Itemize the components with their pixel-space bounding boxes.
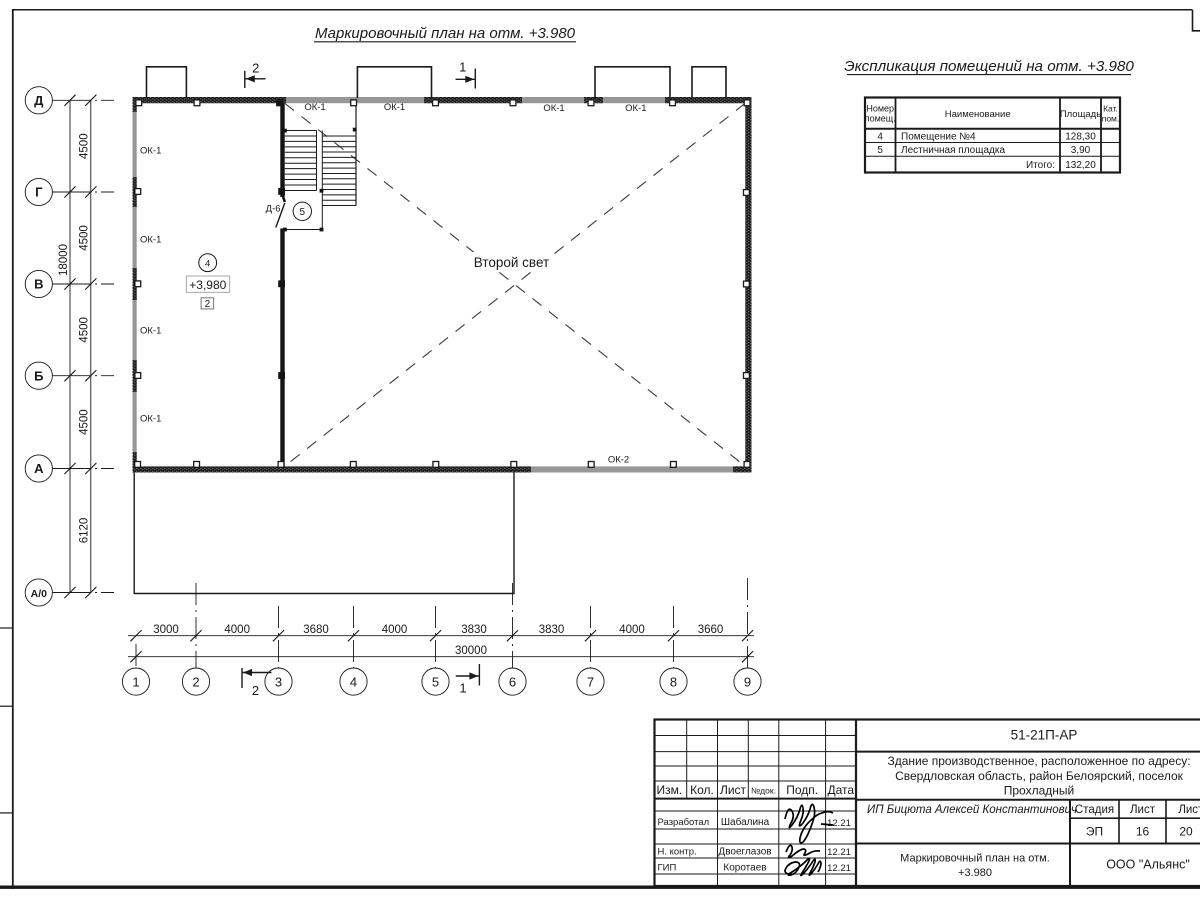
svg-text:4000: 4000: [382, 624, 408, 636]
svg-text:+3,980: +3,980: [189, 278, 226, 292]
svg-text:Д-6: Д-6: [266, 204, 281, 215]
svg-text:3,90: 3,90: [1071, 145, 1091, 156]
svg-text:ЭП: ЭП: [1086, 825, 1103, 839]
svg-text:4: 4: [350, 674, 357, 689]
svg-text:4000: 4000: [619, 624, 645, 636]
svg-text:Площадь: Площадь: [1060, 109, 1101, 120]
svg-text:Н. контр.: Н. контр.: [658, 847, 697, 858]
svg-text:Кол.: Кол.: [690, 783, 714, 797]
svg-text:ОК-1: ОК-1: [140, 235, 161, 246]
svg-text:12.21: 12.21: [827, 863, 851, 874]
svg-text:Маркировочный план на отм. +3.: Маркировочный план на отм. +3.980: [315, 25, 576, 42]
svg-text:3830: 3830: [539, 624, 565, 636]
svg-text:Кат.: Кат.: [1103, 104, 1118, 114]
svg-text:7: 7: [587, 674, 594, 689]
svg-text:8: 8: [670, 674, 677, 689]
svg-text:Маркировочный план на отм.: Маркировочный план на отм.: [900, 853, 1050, 865]
svg-text:51-21П-АР: 51-21П-АР: [1011, 728, 1078, 743]
svg-text:Коротаев: Коротаев: [723, 863, 766, 874]
svg-text:4: 4: [877, 131, 883, 142]
svg-text:Дата: Дата: [828, 783, 855, 797]
svg-text:Изм.: Изм.: [657, 783, 683, 797]
svg-text:18000: 18000: [58, 244, 70, 276]
svg-text:А/0: А/0: [31, 588, 48, 600]
svg-text:Итого:: Итого:: [1026, 160, 1055, 171]
svg-text:Номер: Номер: [866, 104, 894, 114]
svg-text:12.21: 12.21: [827, 818, 851, 829]
svg-text:Подп.: Подп.: [786, 783, 818, 797]
svg-text:4000: 4000: [224, 624, 250, 636]
svg-text:1: 1: [459, 681, 466, 696]
svg-text:+3.980: +3.980: [958, 867, 992, 879]
svg-text:1: 1: [132, 674, 139, 689]
svg-text:Разработал: Разработал: [658, 817, 710, 828]
svg-text:Лист: Лист: [720, 783, 747, 797]
svg-text:Помещение №4: Помещение №4: [901, 131, 976, 142]
svg-text:3: 3: [275, 674, 282, 689]
svg-text:В: В: [34, 277, 43, 292]
svg-text:4500: 4500: [79, 225, 91, 251]
svg-text:Лестничная площадка: Лестничная площадка: [901, 145, 1005, 156]
svg-text:Двоеглазов: Двоеглазов: [718, 847, 771, 858]
svg-text:А: А: [34, 461, 44, 476]
svg-text:2: 2: [252, 683, 259, 698]
svg-text:5: 5: [877, 145, 883, 156]
svg-text:132,20: 132,20: [1065, 160, 1096, 171]
svg-text:4500: 4500: [79, 409, 91, 435]
svg-text:ОК-1: ОК-1: [625, 103, 646, 114]
svg-text:2: 2: [205, 299, 211, 310]
svg-text:3830: 3830: [461, 624, 487, 636]
svg-text:ОК-1: ОК-1: [140, 325, 161, 336]
svg-text:ОК-1: ОК-1: [140, 146, 161, 157]
svg-text:Б: Б: [34, 368, 43, 383]
svg-text:3660: 3660: [698, 624, 724, 636]
svg-text:16: 16: [1136, 825, 1150, 839]
svg-text:ГИП: ГИП: [658, 863, 677, 874]
svg-text:9: 9: [744, 674, 751, 689]
svg-text:2: 2: [252, 61, 259, 76]
svg-text:Лист: Лист: [1130, 804, 1156, 816]
svg-text:ОК-1: ОК-1: [140, 414, 161, 425]
svg-text:Д: Д: [34, 93, 44, 108]
svg-text:Здание производственное, распо: Здание производственное, расположенное п…: [887, 754, 1190, 768]
svg-text:ООО "Альянс": ООО "Альянс": [1106, 858, 1190, 872]
svg-text:ОК-1: ОК-1: [304, 102, 325, 113]
svg-text:пом.: пом.: [1102, 114, 1120, 124]
svg-text:3000: 3000: [153, 624, 179, 636]
svg-text:5: 5: [300, 207, 306, 218]
svg-text:20: 20: [1179, 825, 1193, 839]
svg-text:Шабалина: Шабалина: [721, 816, 770, 828]
svg-text:ОК-1: ОК-1: [384, 102, 405, 113]
svg-text:Г: Г: [35, 185, 43, 200]
svg-text:Листов: Листов: [1178, 804, 1200, 816]
svg-text:12.21: 12.21: [827, 847, 851, 858]
svg-text:ОК-1: ОК-1: [543, 103, 564, 114]
svg-text:Стадия: Стадия: [1075, 804, 1114, 816]
svg-text:№док.: №док.: [751, 786, 776, 796]
svg-text:Свердловская область, район Бе: Свердловская область, район Белоярский, …: [895, 769, 1184, 783]
svg-text:128,30: 128,30: [1065, 131, 1096, 142]
svg-text:5: 5: [432, 674, 439, 689]
svg-text:2: 2: [192, 674, 199, 689]
svg-text:Второй свет: Второй свет: [474, 255, 549, 270]
svg-text:Прохладный: Прохладный: [1004, 784, 1074, 798]
svg-text:ОК-2: ОК-2: [608, 454, 629, 465]
svg-text:помещ.: помещ.: [865, 114, 896, 124]
svg-text:ИП Бицюта Алексей Константинов: ИП Бицюта Алексей Константинович: [867, 804, 1077, 816]
svg-text:3680: 3680: [303, 624, 329, 636]
svg-text:6: 6: [509, 674, 516, 689]
svg-text:4: 4: [205, 259, 210, 270]
svg-text:6120: 6120: [79, 518, 91, 544]
svg-text:30000: 30000: [455, 645, 487, 657]
svg-text:Экспликация помещений на отм.: Экспликация помещений на отм. +3.980: [844, 58, 1134, 75]
svg-text:Наименование: Наименование: [945, 109, 1011, 120]
svg-text:1: 1: [459, 60, 466, 75]
svg-text:4500: 4500: [79, 317, 91, 343]
svg-text:4500: 4500: [79, 133, 91, 159]
